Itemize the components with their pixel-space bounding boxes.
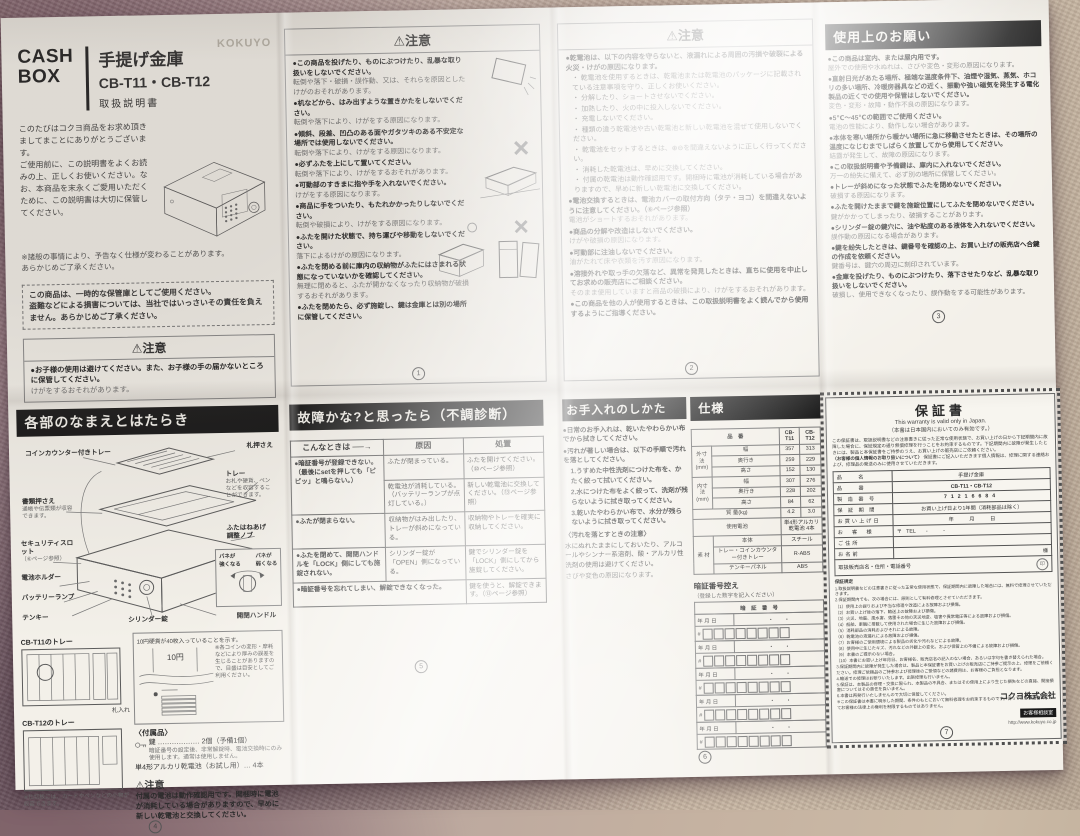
section-header: 故障かな?と思ったら（不調診断）: [289, 400, 543, 431]
troubleshooting-table: こんなときは ──→ 原因 処置 ●暗証番号が登録できない。（最後にsetを押し…: [290, 436, 547, 608]
spring-weak-label: バネが 弱くなる: [255, 551, 277, 567]
pin-rows: 年 月 日 ・ ・ # 年 月 日 ・ ・ #: [694, 612, 827, 750]
coin-counter-art: 10円: [137, 645, 216, 720]
pin-date-label: 年 月 日: [696, 695, 735, 708]
spec-change-note: ※諸般の事情により、予告なく仕様が変わることがあります。 あらかじめご了承くださ…: [21, 247, 273, 274]
label-bill-holder: 札押さえ: [247, 442, 274, 450]
care-step: 3.乾いたやわらかい布で、水分が残らないように拭き取ってください。: [571, 507, 688, 528]
caution-item-detail: 無理に閉めると、ふたが開かなくなったり収納物が破損するおそれがあります。: [297, 280, 470, 302]
spring-knob-inset: バネが 強くなる バネが 弱くなる: [215, 548, 282, 607]
symptom-cell: ●ふたを閉めて、開閉ハンドルを「LOCK」側にしても施錠されない。: [292, 547, 386, 582]
panel-cover: KOKUYO CASH BOX 手提げ金庫 CB-T11・CB-T12 取扱説明…: [17, 35, 276, 403]
coin-counter-inset: 10円硬貨が40枚入っていることを示す。 10円: [133, 630, 285, 725]
usage-item: ●ふたを開けたままで鍵を施錠位置にしてふたを閉めないでください。 鍵がかかってし…: [830, 200, 1042, 222]
caution-item: ●商品の分解や改造はしないでください。 けがや破損の原因になります。: [569, 223, 809, 247]
symptom-cell: ●ふたが閉まらない。: [292, 514, 386, 549]
disclaimer-box: この商品は、一時的な保管庫としてご使用ください。 盗難などによる損害については、…: [22, 279, 275, 329]
t11-tray-art: [21, 647, 122, 707]
stamp-circle: 印: [1036, 558, 1048, 570]
label-doc-holder: 書類押さえ 通帳や伝票類が収容できます。: [22, 498, 74, 521]
warranty-form: 品 名手提げ金庫 品 番CB-T11・CB-T12 製 造 番 号7121668…: [833, 467, 1053, 576]
fix-cell: 収納物やトレーを確実に収納してください。: [464, 511, 545, 546]
panel-troubleshooting: 故障かな?と思ったら（不調診断） こんなときは ──→ 原因 処置 ●暗証番号が…: [289, 400, 547, 608]
label-battery-holder: 電池ホルダー: [21, 574, 61, 583]
cause-cell: 乾電池が消耗している。（バッテリーランプが点灯している。）: [384, 478, 464, 513]
label-keypad: テンキー: [22, 614, 49, 622]
caution-item-detail: 転倒や落下・破損・誤作動、又は、それらを原因としたけがのおそれがあります。: [293, 75, 466, 97]
pin-date-label: 年 月 日: [695, 614, 734, 627]
page-number: 6: [698, 751, 711, 764]
usage-item: ●シリンダー錠の鍵穴に、油や粘度のある液体を入れないでください。 誤作動の原因に…: [831, 220, 1043, 242]
usage-item-title: ●直射日光があたる場所、極端な温度条件下、油煙や湿気、蒸気、ホコリの多い場所、冷…: [828, 71, 1040, 102]
company-block: コクヨ株式会社 お客様相談室 http://www.kokuyo.co.jp: [1000, 690, 1057, 725]
caution-item: ●机などから、はみ出すような置きかたをしないでください。 転倒や落下により、けが…: [293, 95, 534, 128]
symptom-cell: ●暗証番号が登録できない。（最後にsetを押しても「ピピッ」と鳴らない。）: [291, 455, 385, 515]
label-cylinder-lock: シリンダー錠: [128, 616, 168, 625]
panel-warranty: 保証書 This warranty is valid only in Japan…: [820, 388, 1067, 749]
usage-item: ●金庫を投げたり、ものにぶつけたり、落下させたりなど、乱暴な取り扱いをしないでく…: [832, 269, 1044, 300]
tray-diagrams: CB-T11のトレー 札入れ CB-T12のトレー: [21, 633, 133, 824]
care-section: お手入れのしかた ●日常のお手入れは、乾いたやわらかい布でから拭きしてください。…: [562, 397, 693, 753]
panel-usage-notes: 使用上のお願い ●この商品は室内、または屋内用です。 屋外での使用や水ぬれは、さ…: [825, 20, 1046, 307]
fix-cell: 鍵を使うと、解錠できます。（⑬ページ参照）: [466, 578, 547, 604]
usage-item: ●この商品は室内、または屋内用です。 屋外での使用や水ぬれは、さびや変色・変形の…: [828, 51, 1040, 73]
col-cause: 原因: [383, 438, 463, 455]
spec-outer-label: 外寸法 (mm): [692, 446, 713, 478]
battery-caution-subitem: 付属の乾電池は動作確認用です。開梱時に電池が消耗している場合がありますので、早め…: [574, 172, 808, 196]
panel-part-names: 各部のなまえとはたらき: [16, 405, 286, 824]
caution-item-detail: 転倒や破損により、けがをする原因になります。: [296, 218, 469, 231]
pin-date-label: 年 月 日: [697, 722, 736, 735]
key-note: 暗証番号の設定後、非常解錠時、電池交換時にのみ使用します。通常は使用しません。: [149, 745, 285, 763]
svg-text:10円: 10円: [167, 653, 184, 662]
title-block: CASH BOX 手提げ金庫 CB-T11・CB-T12 取扱説明書: [17, 43, 270, 112]
company-name: コクヨ株式会社: [1000, 690, 1056, 702]
care-note-title: 〈汚れを落とすときの注意〉: [565, 529, 689, 541]
bill-slot-label: 札入れ: [22, 705, 130, 716]
accessory-caution: ⚠注意 付属の電池は動作確認用です。開梱時に電池が消耗している場合がありますので…: [135, 773, 286, 821]
spec-battery-label: 使用電池: [693, 518, 781, 537]
col-symptom: こんなときは ──→: [290, 439, 383, 457]
spring-strong-label: バネが 強くなる: [219, 552, 241, 568]
fix-cell: ふたを開けてください。（⑩ページ参照）: [463, 452, 544, 478]
pin-date-label: 年 月 日: [695, 641, 734, 654]
spec-section: 仕様 品 番 CB-T11 CB-T12 外寸法 (mm) 幅357313 奥行…: [690, 394, 827, 750]
usage-item: ●この取扱説明書や予備鍵は、庫内に入れないでください。 万一の紛失に備えて、必ず…: [830, 159, 1042, 181]
spec-head-t11: CB-T11: [779, 427, 800, 444]
page-number: 7: [940, 726, 953, 739]
symptom-cell: ●暗証番号を忘れてしまい、解錠できなくなった。: [293, 579, 466, 607]
spec-inner-label: 内寸法 (mm): [692, 477, 713, 509]
spec-material-label: 素 材: [693, 536, 714, 574]
care-note-body: 水にぬれたままにしておいたり、アルコールやシンナー系溶剤、酸・アルカリ性洗剤の使…: [565, 540, 690, 570]
caution-item-title: ●ふたを閉めたら、必ず施錠し、鍵は金庫とは別の場所に保管してください。: [297, 301, 470, 323]
spec-head-item: 品 番: [691, 428, 779, 447]
usage-item: ●5℃〜45℃の範囲でご使用ください。 電池の性能により、動作しない場合がありま…: [829, 110, 1041, 132]
caution-item: ●この商品を他の人が使用するときは、この取扱説明書をよく読んでから使用するように…: [570, 296, 810, 320]
intro-text: このたびはコクヨ商品をお求め頂きましてまことにありがとうございます。 ご使用前に…: [19, 121, 153, 246]
support-badge: お客様相談室: [1020, 708, 1056, 718]
page-number: 2: [685, 362, 698, 375]
caution-item: ●ふたを閉めたら、必ず施錠し、鍵は金庫とは別の場所に保管してください。: [297, 299, 537, 323]
label-tray: トレー お札や硬貨、ペンなどを収容することができます。: [225, 470, 274, 500]
page-number: 1: [412, 367, 425, 380]
unstable-surface-illustration: [479, 159, 540, 200]
t12-tray-label: CB-T12のトレー: [22, 717, 130, 729]
care-note-detail: さびや変色の原因になります。: [565, 570, 689, 582]
cause-cell: 収納物がはみ出したり、トレーが斜めになっている。: [385, 512, 465, 547]
caution-item: ●可動部に注油しないでください。 油がたれて床や衣類を汚す原因になります。: [569, 244, 809, 268]
cause-cell: ふたが閉まっている。: [384, 454, 464, 480]
lid-orientation-illustration: [437, 237, 542, 283]
tray-note: お札や硬貨、ペンなどを収容することができます。: [226, 478, 274, 500]
page-number: 3: [932, 310, 945, 323]
parts-diagram: コインカウンター付きトレー 札押さえ トレー お札や硬貨、ペンなどを収容すること…: [17, 432, 283, 633]
section-header: お手入れのしかた: [562, 397, 686, 421]
coin-counter-note: ※各コインの変形・摩耗などにより厚みの誤差を生じることがありますので、目盛は目安…: [215, 644, 278, 719]
spring-knob-art: [216, 567, 279, 596]
fix-cell: 鍵でシリンダー錠を「LOCK」側にしてから施錠してください。: [465, 544, 546, 579]
caution-item: ●商品に手をついたり、もたれかかったりしないでください。 転倒や破損により、けが…: [295, 198, 536, 231]
section-header: 仕様: [690, 394, 820, 420]
title-english: CASH BOX: [17, 47, 74, 112]
usage-item: ●トレーが斜めになった状態でふたを閉めないでください。 破損する原因になります。: [830, 179, 1042, 201]
page-number: 5: [415, 660, 428, 673]
t12-tray-art: [22, 728, 123, 792]
battery-line: 単4形アルカリ乾電池（お試し用）… 4本: [135, 761, 285, 773]
page-number: 4: [149, 820, 162, 833]
falling-box-illustration: [483, 53, 536, 100]
panel-care-and-spec: お手入れのしかた ●日常のお手入れは、乾いたやわらかい布でから拭きしてください。…: [562, 394, 827, 752]
title-divider: [85, 46, 89, 110]
pin-memo-subtitle: （登録した数字を記入ください）: [694, 590, 824, 600]
caution-item: ●傾斜、段差、凹凸のある面やガタツキのある不安定な場所では使用しないでください。…: [294, 126, 535, 159]
title-japanese: 手提げ金庫: [98, 44, 210, 71]
panel-caution-handling: ⚠注意 × ○ ×: [284, 24, 547, 387]
usage-item: ●本体を寒い場所から暖かい場所に急に移動させたときは、その場所の温度になじむまで…: [829, 130, 1041, 161]
spec-head-t12: CB-T12: [800, 427, 821, 444]
divider-note: ※仕切板には、カードやペンなどの小物が収容できます。: [24, 793, 132, 810]
manual-paper: KOKUYO CASH BOX 手提げ金庫 CB-T11・CB-T12 取扱説明…: [1, 0, 1064, 790]
accessories: 〈付属品〉 鍵 ……………… 2個（予備1個） 暗証番号の設定後、非常解錠時、電…: [134, 726, 285, 773]
usage-item: ●直射日光があたる場所、極端な温度条件下、油煙や湿気、蒸気、ホコリの多い場所、冷…: [828, 71, 1041, 111]
doc-type: 取扱説明書: [99, 93, 211, 110]
child-caution-box: ⚠注意 ●お子様の使用は避けてください。また、お子様の手の届かないところに保管し…: [23, 333, 276, 402]
fix-cell: 新しい乾電池に交換してください。（⑬ページ参照）: [464, 477, 545, 512]
caution-item-detail: 転倒や落下により、けがをする原因になります。: [294, 115, 467, 128]
caution-text: 付属の電池は動作確認用です。開梱時に電池が消耗している場合がありますので、早めに…: [136, 788, 287, 821]
label-battery-lamp: バッテリーランプ: [22, 594, 75, 603]
usage-item: ●鍵を紛失したときは、鍵番号を確認の上、お買い上げの販売店へ合鍵の作成を依頼くだ…: [831, 240, 1043, 271]
caution-item-title: ●この商品を他の人が使用するときは、この取扱説明書をよく読んでから使用するように…: [570, 296, 810, 320]
cause-cell: シリンダー錠が「OPEN」側になっている。: [385, 546, 465, 581]
key-icon: [135, 740, 147, 751]
panel-caution-battery: ⚠注意 ●乾電池は、以下の内容を守らないと、液漏れによる周囲の汚損や破裂による火…: [557, 19, 820, 382]
col-fix: 処置: [463, 436, 544, 453]
label-coin-tray: コインカウンター付きトレー: [25, 449, 111, 459]
label-lid-knob: ふたはねあげ 調整ノブ: [226, 524, 278, 541]
t11-tray-label: CB-T11のトレー: [21, 636, 129, 648]
label-handle: 開閉ハンドル: [237, 612, 277, 621]
care-step: 2.水につけた布をよく絞って、洗剤が残らないように拭き取ってください。: [571, 486, 688, 507]
pin-date-label: 年 月 日: [696, 668, 735, 681]
model-numbers: CB-T11・CB-T12: [99, 71, 211, 93]
caution-item: ●電池交換するときは、電池カバーの取付方向（タテ・ヨコ）を間違えないように注意し…: [568, 193, 809, 226]
label-security-slot: セキュリティスロット （⑥ページ参照）: [21, 540, 75, 564]
care-item: ●汚れが著しい場合は、以下の手順で汚れを落としてください。: [563, 445, 687, 466]
company-url: http://www.kokuyo.co.jp: [1000, 719, 1056, 725]
spec-table: 品 番 CB-T11 CB-T12 外寸法 (mm) 幅357313 奥行き25…: [691, 426, 824, 575]
doc-holder-note: 通帳や伝票類が収容できます。: [22, 506, 74, 521]
cashbox-illustration: [153, 145, 273, 243]
pin-digit-boxes: #: [697, 732, 826, 749]
care-item: ●日常のお手入れは、乾いたやわらかい布でから拭きしてください。: [563, 424, 687, 445]
kokuyo-logo: KOKUYO: [217, 37, 272, 50]
caution-item: ●溶接外れや取っ手の欠落など、異常を発見したときは、直ちに使用を中止してお求めの…: [570, 265, 811, 298]
care-step: 1.うすめた中性洗剤につけた布を、かたく絞って拭いてください。: [570, 465, 687, 486]
